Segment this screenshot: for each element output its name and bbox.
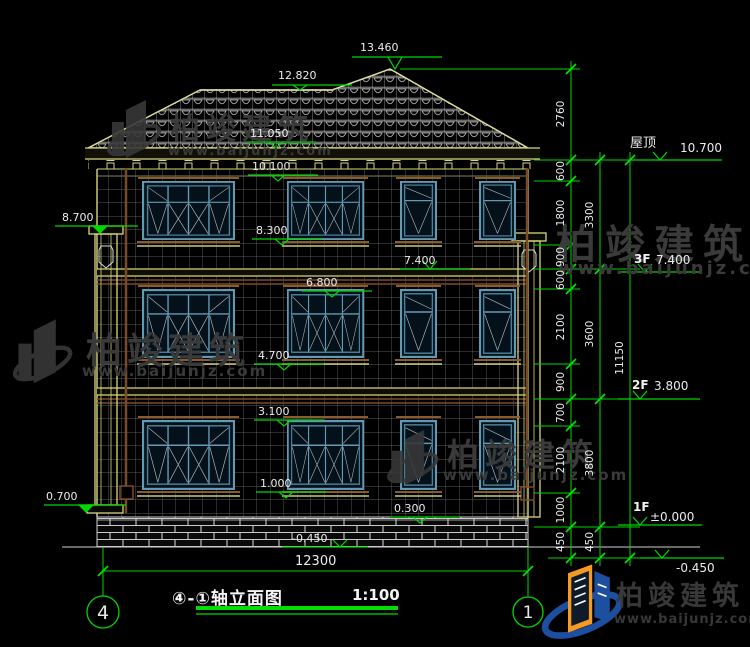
drawing-scale: 1:100 bbox=[352, 586, 400, 604]
elevation-label: 7.400 bbox=[404, 255, 436, 266]
dim-width: 12300 bbox=[295, 555, 336, 568]
floor-label-2f: 2F bbox=[632, 378, 649, 392]
roof-level-elev: 10.700 bbox=[680, 142, 722, 154]
watermark-brand: 柏竣建筑 bbox=[170, 104, 314, 148]
dim-value: 3800 bbox=[585, 450, 596, 477]
grade-elev: -0.450 bbox=[676, 562, 715, 574]
elevation-label: 13.460 bbox=[360, 42, 399, 53]
dim-value: 600 bbox=[556, 270, 567, 290]
drawing-title: ④-①轴立面图 bbox=[172, 584, 283, 609]
dim-value: 450 bbox=[585, 532, 596, 552]
elevation-label: 4.700 bbox=[258, 350, 290, 361]
axis-bubble-1: 1 bbox=[523, 603, 534, 623]
watermark-url: www.baijunjz.com bbox=[168, 144, 333, 159]
dim-value: 900 bbox=[556, 372, 567, 392]
watermark-url: www.baijunjz.com bbox=[443, 466, 628, 484]
elevation-label: 3.100 bbox=[258, 406, 290, 417]
dim-value: 2100 bbox=[556, 447, 567, 474]
elevation-label: 12.820 bbox=[278, 70, 317, 81]
floor-elev-3f: 7.400 bbox=[656, 254, 690, 266]
logo-glyph bbox=[540, 564, 625, 644]
logo-brand: 柏竣建筑 bbox=[616, 574, 744, 613]
cad-elevation-canvas: 柏竣建筑 www.baijunjz.com 柏竣建筑 www.baijunjz.… bbox=[0, 0, 750, 647]
axis-bubbles bbox=[87, 596, 543, 628]
elevation-label: -0.450 bbox=[292, 533, 327, 544]
dim-value: 3600 bbox=[585, 321, 596, 348]
floor-elev-2f: 3.800 bbox=[654, 380, 688, 392]
dim-value: 450 bbox=[556, 532, 567, 552]
dim-value: 700 bbox=[556, 403, 567, 423]
floor-label-3f: 3F bbox=[634, 252, 651, 266]
elevation-label: 1.000 bbox=[260, 478, 292, 489]
dim-value: 900 bbox=[556, 247, 567, 267]
watermark-url: www.baijunjz.com bbox=[82, 362, 267, 380]
floor-elev-1f: ±0.000 bbox=[650, 511, 694, 523]
dim-value: 600 bbox=[556, 161, 567, 181]
elevation-label: 10.100 bbox=[252, 161, 291, 172]
dim-value: 2760 bbox=[556, 101, 567, 128]
dim-value: 1800 bbox=[556, 200, 567, 227]
axis-bubble-4: 4 bbox=[97, 602, 109, 624]
elevation-label: 8.300 bbox=[256, 225, 288, 236]
watermark-url: www.baijunjz.com bbox=[558, 258, 750, 279]
elevation-label: 11.050 bbox=[250, 128, 289, 139]
roof-level-name: 屋顶 bbox=[630, 137, 656, 150]
elevation-label: 8.700 bbox=[62, 212, 94, 223]
elevation-label: 6.800 bbox=[306, 277, 338, 288]
floor-label-1f: 1F bbox=[633, 500, 650, 514]
dim-value: 2100 bbox=[556, 314, 567, 341]
logo-url: www.baijunjz.com bbox=[614, 612, 750, 627]
elevation-label: 0.300 bbox=[394, 503, 426, 514]
dim-value: 3300 bbox=[585, 202, 596, 229]
dim-total: 11150 bbox=[615, 341, 626, 374]
elevation-label: 0.700 bbox=[46, 491, 78, 502]
dim-value: 1000 bbox=[556, 497, 567, 524]
